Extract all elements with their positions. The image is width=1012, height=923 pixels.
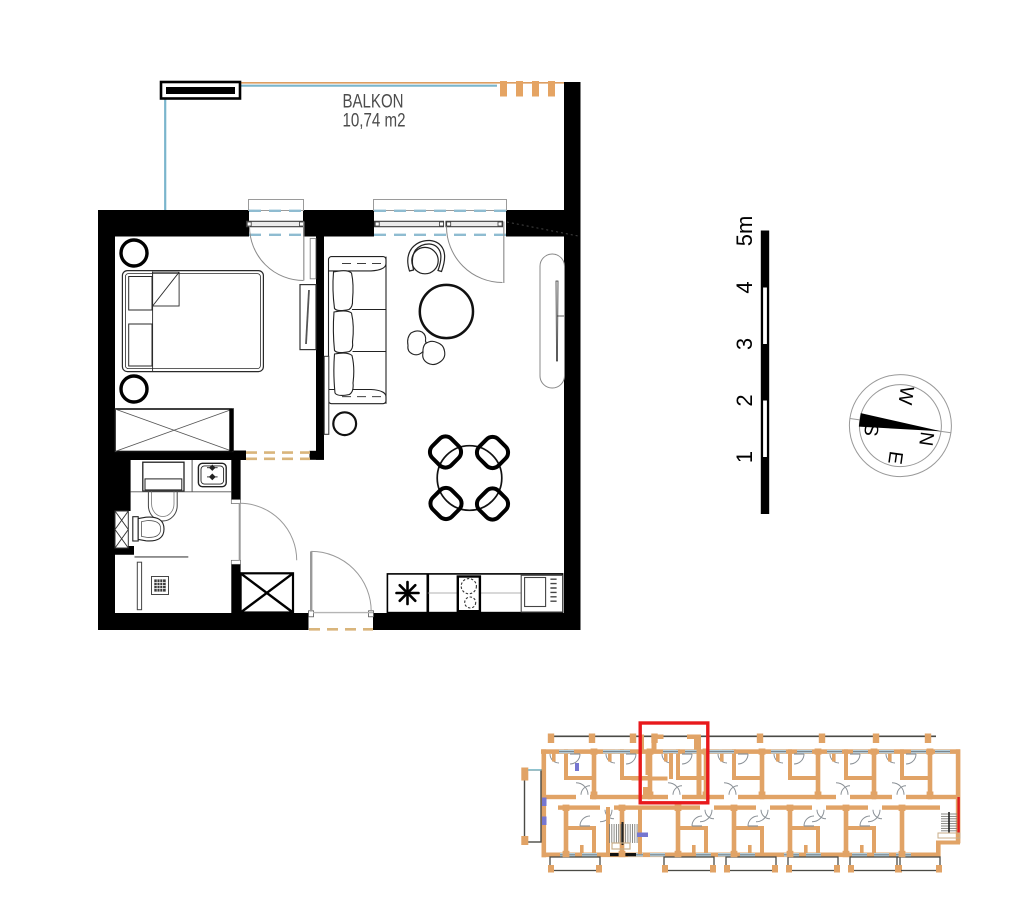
svg-text:5m: 5m bbox=[732, 216, 757, 247]
svg-text:4: 4 bbox=[732, 281, 757, 293]
svg-text:3: 3 bbox=[732, 338, 757, 350]
svg-text:10,74 m2: 10,74 m2 bbox=[343, 110, 406, 132]
svg-text:1: 1 bbox=[732, 451, 757, 463]
svg-text:W: W bbox=[893, 385, 917, 407]
svg-text:2: 2 bbox=[732, 394, 757, 406]
